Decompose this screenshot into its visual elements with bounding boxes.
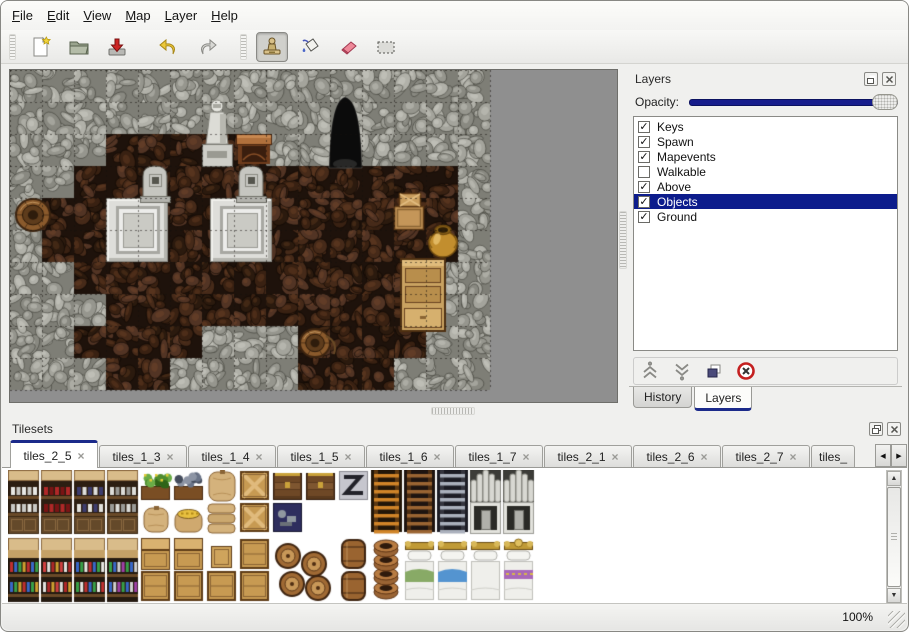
menu-file[interactable]: File: [12, 8, 33, 23]
tab-label: Layers: [705, 391, 741, 405]
save-map-button[interactable]: [101, 32, 133, 62]
tileset-tab-tiles_2_5[interactable]: tiles_2_5×: [10, 440, 98, 468]
tileset-tab-tiles_1_4[interactable]: tiles_1_4×: [188, 445, 276, 467]
menu-map[interactable]: Map: [125, 8, 150, 23]
opacity-slider-groove: [689, 99, 898, 106]
tileset-tab-tiles_1_3[interactable]: tiles_1_3×: [99, 445, 187, 467]
tab-label: History: [644, 390, 681, 404]
opacity-label: Opacity:: [635, 95, 679, 109]
tab-label: tiles_1_6: [379, 450, 427, 464]
layer-label: Spawn: [657, 135, 694, 149]
tab-label: tiles_1_7: [468, 450, 516, 464]
layer-row-keys[interactable]: ✓Keys: [634, 119, 897, 134]
layer-label: Keys: [657, 120, 684, 134]
redo-button[interactable]: [191, 32, 223, 62]
tab-label: tiles_2_6: [646, 450, 694, 464]
close-panel-button[interactable]: [887, 422, 901, 436]
menu-help[interactable]: Help: [211, 8, 238, 23]
layer-visibility-checkbox[interactable]: ✓: [638, 121, 650, 133]
stamp-tool-button[interactable]: [256, 32, 288, 62]
save-icon: [105, 35, 129, 59]
tilesets-panel-titlebar: Tilesets: [2, 419, 907, 439]
new-map-button[interactable]: [25, 32, 57, 62]
layer-row-objects[interactable]: ✓Objects: [634, 194, 897, 209]
scroll-tabs-left-button[interactable]: ◀: [875, 444, 891, 467]
tab-layers[interactable]: Layers: [694, 387, 752, 411]
menu-view[interactable]: View: [83, 8, 111, 23]
tab-label: tiles_1_4: [201, 450, 249, 464]
close-tab-icon[interactable]: ×: [434, 451, 441, 463]
layer-row-walkable[interactable]: Walkable: [634, 164, 897, 179]
horizontal-splitter-handle[interactable]: [431, 407, 475, 415]
open-folder-icon: [67, 35, 91, 59]
eraser-icon: [336, 35, 360, 59]
scroll-tabs-right-button[interactable]: ▶: [891, 444, 907, 467]
scroll-down-button[interactable]: ▼: [887, 588, 901, 603]
layer-visibility-checkbox[interactable]: ✓: [638, 136, 650, 148]
tileset-tab-tiles_1_6[interactable]: tiles_1_6×: [366, 445, 454, 467]
layer-visibility-checkbox[interactable]: ✓: [638, 211, 650, 223]
float-window-icon: [871, 424, 882, 435]
status-bar: 100%: [2, 603, 907, 630]
tileset-tab-tiles_2_7[interactable]: tiles_2_7×: [722, 445, 810, 467]
vertical-splitter-handle[interactable]: [619, 211, 627, 269]
stamp-tool-icon: [260, 35, 284, 59]
close-panel-button[interactable]: [882, 72, 896, 86]
duplicate-layer-button[interactable]: [702, 359, 726, 383]
tileset-tab-truncated[interactable]: tiles_: [811, 445, 855, 467]
menu-edit[interactable]: Edit: [47, 8, 69, 23]
layer-buttons-row: [633, 357, 898, 385]
layer-row-above[interactable]: ✓Above: [634, 179, 897, 194]
layers-panel-title: Layers: [635, 72, 671, 86]
lower-layer-button[interactable]: [670, 359, 694, 383]
toolbar-drag-handle[interactable]: [240, 34, 247, 60]
menu-layer[interactable]: Layer: [165, 8, 198, 23]
layer-visibility-checkbox[interactable]: [638, 166, 650, 178]
undo-arrow-icon: [157, 35, 181, 59]
eraser-tool-button[interactable]: [332, 32, 364, 62]
tilesets-panel: Tilesets tiles_2_5× tiles_1_3× tiles_1_4…: [2, 419, 907, 605]
open-map-button[interactable]: [63, 32, 95, 62]
close-tab-icon[interactable]: ×: [523, 451, 530, 463]
fill-tool-button[interactable]: [294, 32, 326, 62]
layer-row-ground[interactable]: ✓Ground: [634, 209, 897, 224]
tileset-tab-tiles_2_6[interactable]: tiles_2_6×: [633, 445, 721, 467]
layer-visibility-checkbox[interactable]: ✓: [638, 181, 650, 193]
fill-bucket-icon: [298, 35, 322, 59]
chevrons-up-icon: [640, 361, 660, 381]
tab-label: tiles_: [819, 450, 847, 464]
scrollbar-thumb[interactable]: [887, 487, 901, 587]
tileset-canvas[interactable]: [8, 470, 884, 604]
map-editor-window: File Edit View Map Layer Help: [0, 0, 909, 632]
close-tab-icon[interactable]: ×: [167, 451, 174, 463]
layer-label: Walkable: [657, 165, 706, 179]
chevrons-down-icon: [672, 361, 692, 381]
close-icon: [889, 424, 900, 435]
map-canvas[interactable]: [10, 70, 617, 402]
layer-label: Mapevents: [657, 150, 716, 164]
delete-layer-button[interactable]: [734, 359, 758, 383]
layer-list: ✓Keys ✓Spawn ✓Mapevents Walkable ✓Above …: [633, 116, 898, 351]
opacity-slider[interactable]: [689, 94, 898, 110]
layer-label: Objects: [657, 195, 698, 209]
duplicate-icon: [704, 361, 724, 381]
tileset-content: ▲ ▼: [2, 468, 907, 605]
raise-layer-button[interactable]: [638, 359, 662, 383]
delete-icon: [736, 361, 756, 381]
tilesets-panel-title: Tilesets: [12, 422, 53, 436]
layer-row-mapevents[interactable]: ✓Mapevents: [634, 149, 897, 164]
float-window-icon: [866, 74, 877, 85]
scroll-up-button[interactable]: ▲: [887, 471, 901, 486]
tab-history[interactable]: History: [633, 387, 692, 408]
close-tab-icon[interactable]: ×: [256, 451, 263, 463]
tileset-scrollbar[interactable]: ▲ ▼: [886, 470, 902, 604]
new-file-icon: [29, 35, 53, 59]
close-tab-icon[interactable]: ×: [701, 451, 708, 463]
layers-panel: Layers Opacity: ✓Keys ✓Spawn ✓Mapevents …: [629, 69, 902, 413]
layer-visibility-checkbox[interactable]: ✓: [638, 151, 650, 163]
close-icon: [884, 74, 895, 85]
opacity-row: Opacity:: [635, 93, 898, 111]
layer-label: Ground: [657, 210, 697, 224]
tileset-tab-bar: tiles_2_5× tiles_1_3× tiles_1_4× tiles_1…: [2, 439, 907, 468]
undo-button[interactable]: [153, 32, 185, 62]
tab-label: tiles_2_5: [23, 449, 71, 463]
close-tab-icon[interactable]: ×: [78, 450, 85, 462]
layer-label: Above: [657, 180, 691, 194]
float-panel-button[interactable]: [869, 422, 883, 436]
tab-label: tiles_1_5: [290, 450, 338, 464]
layers-panel-titlebar: Layers: [629, 69, 902, 89]
close-tab-icon[interactable]: ×: [790, 451, 797, 463]
tileset-tab-tiles_2_1[interactable]: tiles_2_1×: [544, 445, 632, 467]
menu-bar: File Edit View Map Layer Help: [1, 1, 908, 30]
tab-label: tiles_2_7: [735, 450, 783, 464]
close-tab-icon[interactable]: ×: [612, 451, 619, 463]
float-panel-button[interactable]: [864, 72, 878, 86]
rect-select-tool-button[interactable]: [370, 32, 402, 62]
rect-select-icon: [374, 35, 398, 59]
layer-visibility-checkbox[interactable]: ✓: [638, 196, 650, 208]
close-tab-icon[interactable]: ×: [345, 451, 352, 463]
dock-tab-bar: History Layers: [629, 386, 902, 413]
tab-label: tiles_2_1: [557, 450, 605, 464]
tileset-tab-tiles_1_7[interactable]: tiles_1_7×: [455, 445, 543, 467]
opacity-slider-handle[interactable]: [872, 94, 898, 110]
zoom-level: 100%: [842, 610, 873, 624]
tileset-tab-tiles_1_5[interactable]: tiles_1_5×: [277, 445, 365, 467]
tab-label: tiles_1_3: [112, 450, 160, 464]
layer-row-spawn[interactable]: ✓Spawn: [634, 134, 897, 149]
application-window: File Edit View Map Layer Help: [0, 0, 909, 632]
toolbar: [1, 30, 908, 64]
resize-grip-icon[interactable]: [888, 611, 905, 628]
map-view: [9, 69, 618, 403]
redo-arrow-icon: [195, 35, 219, 59]
toolbar-drag-handle[interactable]: [9, 34, 16, 60]
